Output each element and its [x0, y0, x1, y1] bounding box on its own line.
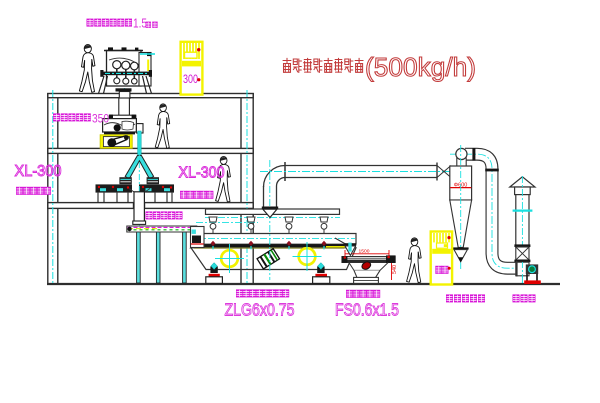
svg-text:XL-300: XL-300 [15, 163, 62, 180]
svg-text:300: 300 [183, 74, 198, 86]
svg-text:XL-300: XL-300 [179, 164, 225, 181]
svg-text:540: 540 [392, 265, 398, 274]
svg-text:(500kg/h): (500kg/h) [365, 54, 476, 82]
svg-text:FS0.6x1.5: FS0.6x1.5 [335, 299, 399, 319]
svg-text:1.5: 1.5 [133, 17, 147, 31]
svg-text:ZLG6x0.75: ZLG6x0.75 [225, 299, 295, 319]
svg-text:350: 350 [92, 111, 109, 125]
svg-text:1500: 1500 [359, 249, 370, 255]
